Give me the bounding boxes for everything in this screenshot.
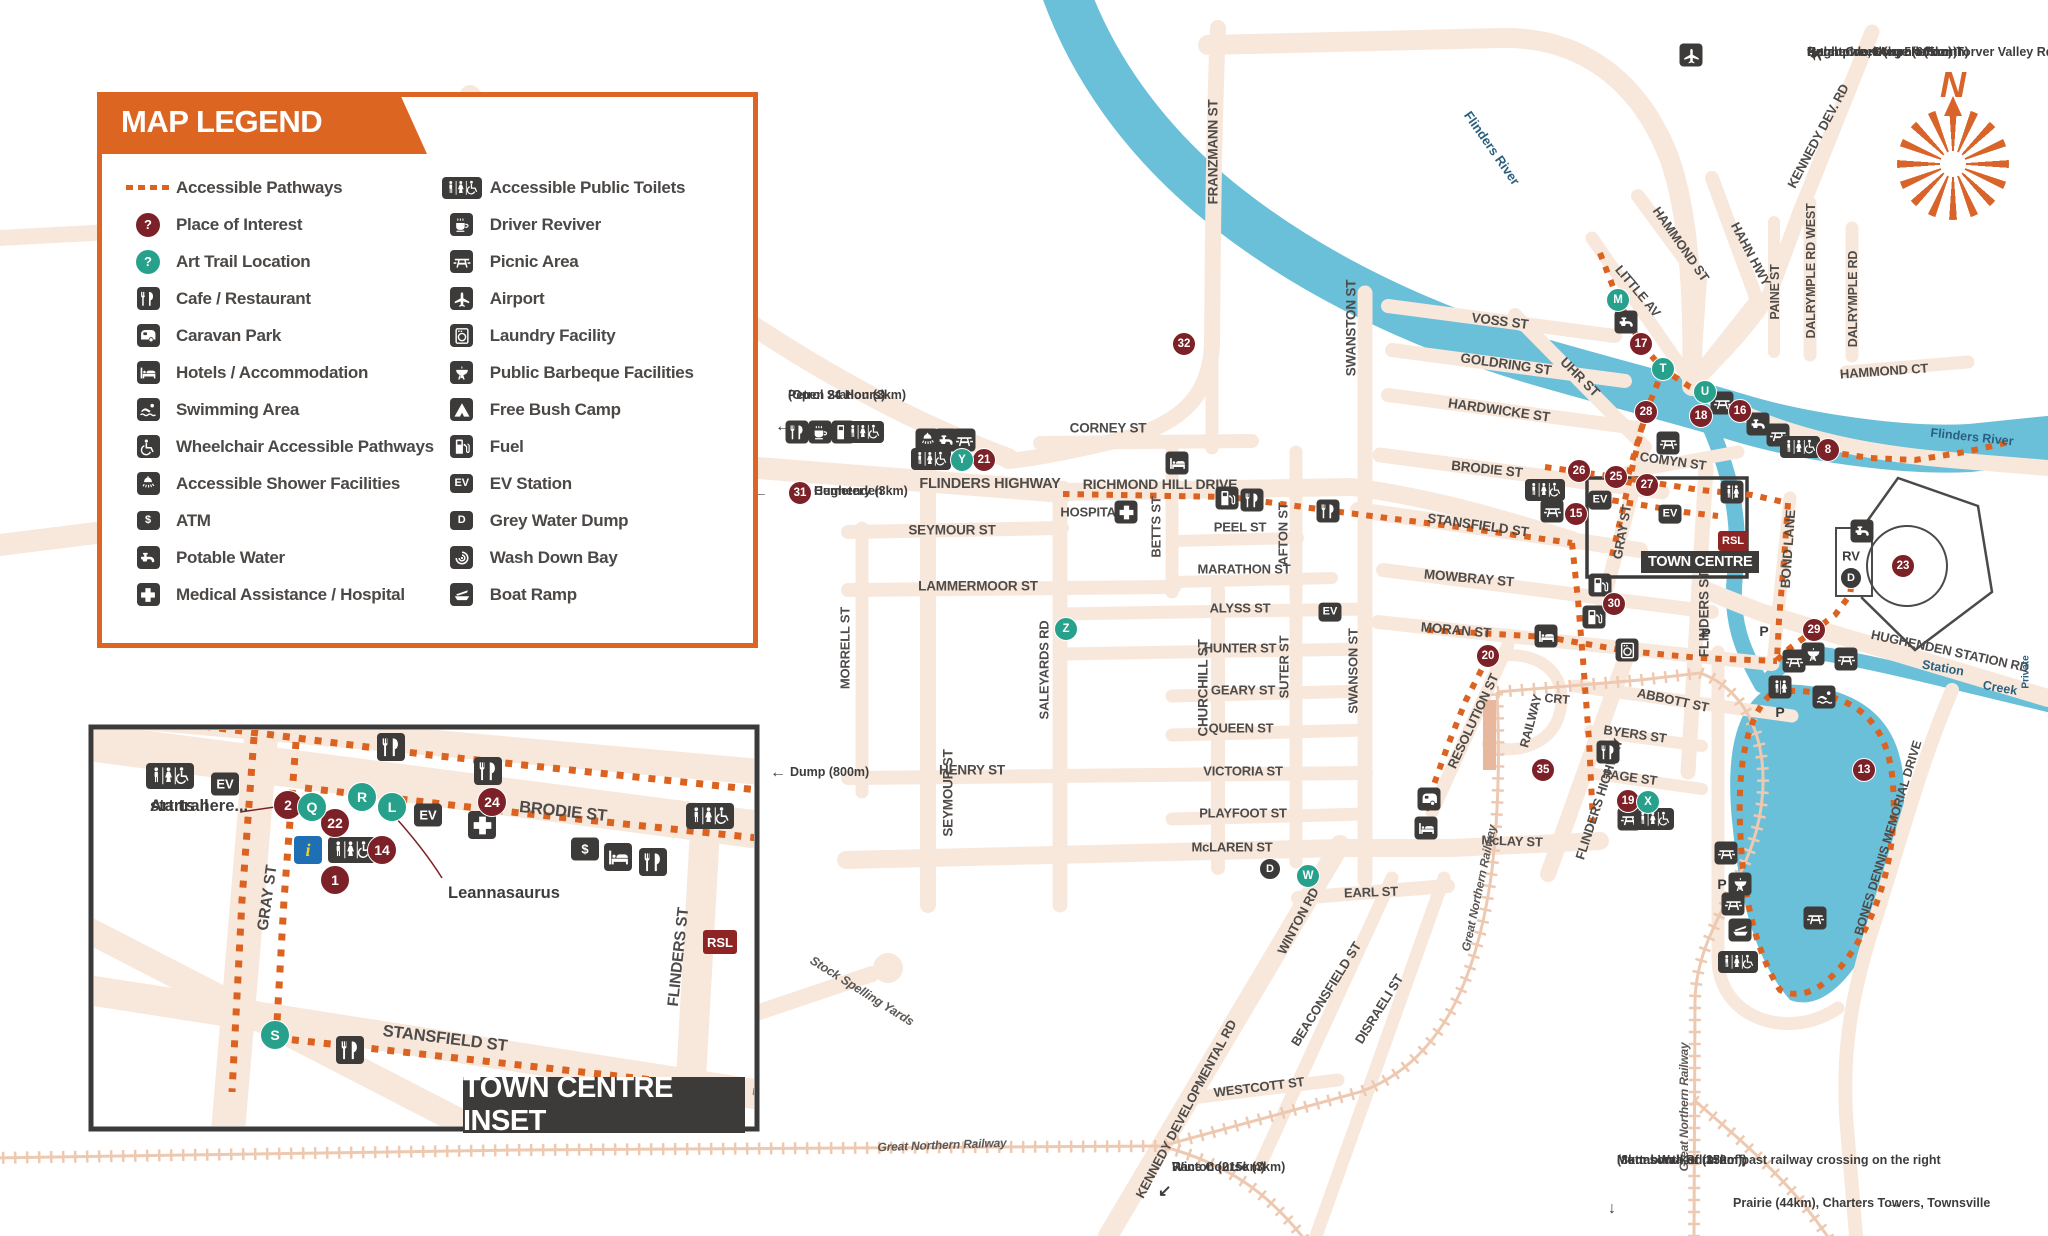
legend-title: MAP LEGEND [97, 92, 427, 154]
street-label: McLAREN ST [1191, 840, 1272, 855]
street-label: PLAYFOOT ST [1199, 806, 1287, 821]
street-label: HUNTER ST [1204, 641, 1277, 656]
map-icon-ev: EV [1589, 491, 1612, 510]
wc-icon [434, 177, 490, 199]
poi-marker-8: 8 [1816, 438, 1840, 462]
legend-item-cross: Medical Assistance / Hospital [120, 576, 434, 613]
map-icon-cafe [377, 733, 405, 761]
legend-column-right: Accessible Public Toilets Driver Reviver… [434, 169, 747, 613]
legend-item-laundry: Laundry Facility [434, 317, 747, 354]
legend-item-tap: Potable Water [120, 539, 434, 576]
street-label: PEEL ST [1214, 520, 1267, 535]
poi-marker-31: 31 [788, 481, 812, 505]
poi-marker-23: 23 [1891, 554, 1915, 578]
parking-label: P [1759, 623, 1768, 639]
dumpD-icon: D [434, 511, 490, 530]
street-label: FLINDERS ST [1697, 571, 1712, 657]
hughenden-town-map: MAP LEGEND Accessible Pathways ? Place o… [0, 0, 2048, 1236]
map-icon-coffee [809, 421, 832, 444]
legend-item-bbq: Public Barbeque Facilities [434, 354, 747, 391]
art-trail-marker-L: L [377, 792, 407, 822]
map-icon-boat [1729, 919, 1752, 942]
map-icon-hotel [1166, 452, 1189, 475]
map-icon-cafe [1317, 500, 1340, 523]
street-label: RICHMOND HILL DRIVE [1083, 476, 1238, 492]
art-trail-marker-Q: Q [297, 792, 327, 822]
poi-marker-21: 21 [972, 448, 996, 472]
legend-item-cafe: Cafe / Restaurant [120, 280, 434, 317]
map-icon-cafe [1597, 741, 1620, 764]
direction-arrow-icon: ↙ [1158, 1181, 1171, 1201]
street-label: BETTS ST [1149, 496, 1164, 557]
legend-item-wash: Wash Down Bay [434, 539, 747, 576]
poi-marker-35: 35 [1531, 758, 1555, 782]
map-icon-wc [911, 448, 951, 470]
map-icon-picnic [1835, 648, 1858, 671]
map-icon-hotel [1535, 625, 1558, 648]
map-icon-tap [1615, 311, 1638, 334]
legend-item-plane: Airport [434, 280, 747, 317]
map-icon-shower [137, 472, 160, 495]
map-icon-ev: EV [211, 773, 239, 796]
parking-label: P [1701, 625, 1710, 641]
map-icon-cross [137, 583, 160, 606]
map-icon-hotel [604, 843, 632, 871]
map-icon-laundry [450, 324, 473, 347]
legend-item-dumpD: D Grey Water Dump [434, 502, 747, 539]
map-icon-plane [1680, 44, 1703, 67]
map-icon-info: i [294, 836, 322, 864]
legend-item-wheelchair: Wheelchair Accessible Pathways [120, 428, 434, 465]
poi-marker-14: 14 [367, 835, 397, 865]
street-label: FRANZMANN ST [1206, 100, 1221, 205]
street-label: EARL ST [1344, 884, 1398, 901]
street-label: AFTON ST [1276, 502, 1291, 565]
map-icon-bbq [450, 361, 473, 384]
plane-icon [434, 287, 490, 310]
map-icon-caravan [1418, 788, 1441, 811]
map-icon-atm: $ [571, 838, 599, 861]
art-trail-marker-U: U [1693, 380, 1717, 404]
poi-marker-1: 1 [320, 865, 350, 895]
map-icon-cafe [1241, 489, 1264, 512]
swim-icon [120, 398, 176, 421]
parking-label: P [1775, 704, 1784, 720]
poi-marker-30: 30 [1602, 592, 1626, 616]
map-icon-plane [450, 287, 473, 310]
map-icon-picnic [1715, 842, 1738, 865]
map-icon-wc [844, 421, 884, 443]
map-icon-picnic [450, 250, 473, 273]
grey-water-dump-marker: D [1840, 567, 1862, 589]
map-icon-cafe [474, 757, 502, 785]
cross-icon [120, 583, 176, 606]
map-icon-fuel [450, 435, 473, 458]
legend-item-shower: Accessible Shower Facilities [120, 465, 434, 502]
compass-rose: N [1897, 88, 2009, 220]
rsl-club-marker: RSL [1718, 531, 1748, 551]
poi-marker-29: 29 [1802, 618, 1826, 642]
poi-marker-13: 13 [1852, 758, 1876, 782]
poi-marker-25: 25 [1604, 465, 1628, 489]
map-icon-wc [686, 803, 734, 829]
compass-center [1940, 151, 1966, 177]
rv-area-label: RV [1842, 549, 1860, 564]
atm-icon: $ [120, 511, 176, 530]
map-icon-cafe [639, 848, 667, 876]
inset-title: TOWN CENTRE INSET [463, 1077, 745, 1133]
legend-item-swim: Swimming Area [120, 391, 434, 428]
map-icon-picnic [1783, 650, 1806, 673]
legend-item-ev: EV EV Station [434, 465, 747, 502]
art-trail-marker-Y: Y [950, 448, 974, 472]
street-label: QUEEN ST [1209, 721, 1274, 736]
boat-icon [434, 583, 490, 606]
map-icon-caravan [137, 324, 160, 347]
art-trail-marker-T: T [1651, 357, 1675, 381]
legend-item-art: ? Art Trail Location [120, 243, 434, 280]
poi-marker-18: 18 [1689, 404, 1713, 428]
wash-icon [434, 546, 490, 569]
map-icon-ev: EV [414, 804, 442, 827]
legend-item-boat: Boat Ramp [434, 576, 747, 613]
street-label: SUTER ST [1277, 636, 1292, 699]
legend-item-wc: Accessible Public Toilets [434, 169, 747, 206]
map-icon-hotel [137, 361, 160, 384]
street-label: CORNEY ST [1070, 421, 1147, 436]
map-icon-ev: EV [1319, 603, 1342, 622]
map-icon-picnic [1541, 500, 1564, 523]
art-icon: ? [120, 250, 176, 274]
art-trail-marker-M: M [1606, 288, 1630, 312]
street-label: CRT [1544, 691, 1570, 707]
water-label: Private [2021, 655, 2032, 688]
map-icon-atm: $ [137, 511, 160, 530]
poi-marker-32: 32 [1172, 332, 1196, 356]
poi-icon: ? [120, 213, 176, 237]
art-trail-marker-Z: Z [1054, 617, 1078, 641]
street-label: DALRYMPLE RD [1846, 251, 1860, 347]
wheelchair-icon [120, 435, 176, 458]
dotted-icon [120, 185, 176, 190]
legend-item-tent: Free Bush Camp [434, 391, 747, 428]
map-icon-wc [146, 763, 194, 789]
street-label: DALRYMPLE RD WEST [1804, 203, 1818, 338]
poi-marker-15: 15 [1564, 502, 1588, 526]
legend-item-picnic: Picnic Area [434, 243, 747, 280]
legend-item-hotel: Hotels / Accommodation [120, 354, 434, 391]
street-label: SEYMOUR ST [941, 749, 956, 836]
legend-item-poi: ? Place of Interest [120, 206, 434, 243]
legend-item-fuel: Fuel [434, 428, 747, 465]
map-icon-ev: EV [1659, 505, 1682, 524]
parking-label: P [1717, 876, 1726, 892]
legend-item-dotted: Accessible Pathways [120, 169, 434, 206]
rsl-club-marker: RSL [703, 930, 737, 954]
poi-marker-28: 28 [1634, 400, 1658, 424]
map-icon-fuel [1583, 606, 1606, 629]
poi-marker-16: 16 [1728, 399, 1752, 423]
street-label: SEYMOUR ST [908, 523, 995, 538]
art-trail-marker-W: W [1296, 864, 1320, 888]
legend-item-caravan: Caravan Park [120, 317, 434, 354]
bbq-icon [434, 361, 490, 384]
street-label: SALEYARDS RD [1037, 621, 1052, 720]
direction-arrow-icon: ← [775, 418, 791, 436]
laundry-icon [434, 324, 490, 347]
street-label: ALYSS ST [1210, 601, 1271, 616]
map-legend: MAP LEGEND Accessible Pathways ? Place o… [97, 92, 758, 648]
caravan-icon [120, 324, 176, 347]
map-icon-wc2 [1769, 676, 1792, 699]
map-icon-cafe [336, 1036, 364, 1064]
map-icon-wc2 [1721, 481, 1744, 504]
map-icon-picnic [1722, 893, 1745, 916]
town-centre-label: TOWN CENTRE [1641, 551, 1759, 573]
ev-icon: EV [434, 474, 490, 493]
street-label: LAMMERMOOR ST [918, 579, 1038, 594]
map-icon-wash [450, 546, 473, 569]
shower-icon [120, 472, 176, 495]
coffee-icon [434, 213, 490, 236]
north-label: N [1940, 64, 1966, 106]
picnic-icon [434, 250, 490, 273]
fuel-icon [434, 435, 490, 458]
cafe-icon [120, 287, 176, 310]
direction-arrow-icon: ← [770, 764, 786, 782]
grey-water-dump-marker: D [1259, 858, 1281, 880]
street-label: VICTORIA ST [1203, 764, 1282, 779]
poi-marker-17: 17 [1629, 332, 1653, 356]
tap-icon [120, 546, 176, 569]
map-icon-wc [442, 177, 482, 199]
map-icon-tap [137, 546, 160, 569]
map-icon-picnic [1657, 432, 1680, 455]
tent-icon [434, 398, 490, 421]
map-icon-wc [1525, 479, 1565, 501]
street-label: SWANSON ST [1346, 628, 1361, 713]
map-icon-hotel [1415, 817, 1438, 840]
street-label: GEARY ST [1211, 683, 1275, 698]
map-icon-wc [1780, 436, 1820, 458]
map-icon-cross [1115, 501, 1138, 524]
map-icon-ev: EV [450, 474, 473, 493]
poi-marker-24: 24 [477, 787, 507, 817]
map-icon-cafe [137, 287, 160, 310]
hotel-icon [120, 361, 176, 384]
art-trail-marker-X: X [1636, 790, 1660, 814]
poi-marker-26: 26 [1567, 459, 1591, 483]
legend-column-left: Accessible Pathways ? Place of Interest … [120, 169, 434, 613]
map-icon-dumpD: D [450, 511, 473, 530]
direction-arrow-icon: → [1886, 1195, 1902, 1213]
map-icon-wc [1718, 951, 1758, 973]
art-trail-marker-R: R [347, 782, 377, 812]
poi-marker-27: 27 [1635, 473, 1659, 497]
poi-marker-20: 20 [1476, 644, 1500, 668]
map-icon-laundry [1616, 639, 1639, 662]
street-label: PAINE ST [1768, 264, 1782, 319]
map-icon-fuel [1216, 487, 1239, 510]
map-icon-tent [450, 398, 473, 421]
map-icon-coffee [450, 213, 473, 236]
map-icon-swim [1813, 686, 1836, 709]
map-icon-swim [137, 398, 160, 421]
street-label: SWANSTON ST [1344, 280, 1359, 377]
map-icon-tap [1851, 520, 1874, 543]
art-trail-marker-S: S [260, 1020, 290, 1050]
map-icon-wheelchair [137, 435, 160, 458]
street-label: FLINDERS HIGHWAY [919, 476, 1060, 492]
direction-arrow-icon: ↓ [1608, 1200, 1616, 1218]
street-label: MORRELL ST [838, 607, 853, 689]
legend-item-coffee: Driver Reviver [434, 206, 747, 243]
legend-item-atm: $ ATM [120, 502, 434, 539]
map-icon-boat [450, 583, 473, 606]
map-icon-picnic [1804, 907, 1827, 930]
